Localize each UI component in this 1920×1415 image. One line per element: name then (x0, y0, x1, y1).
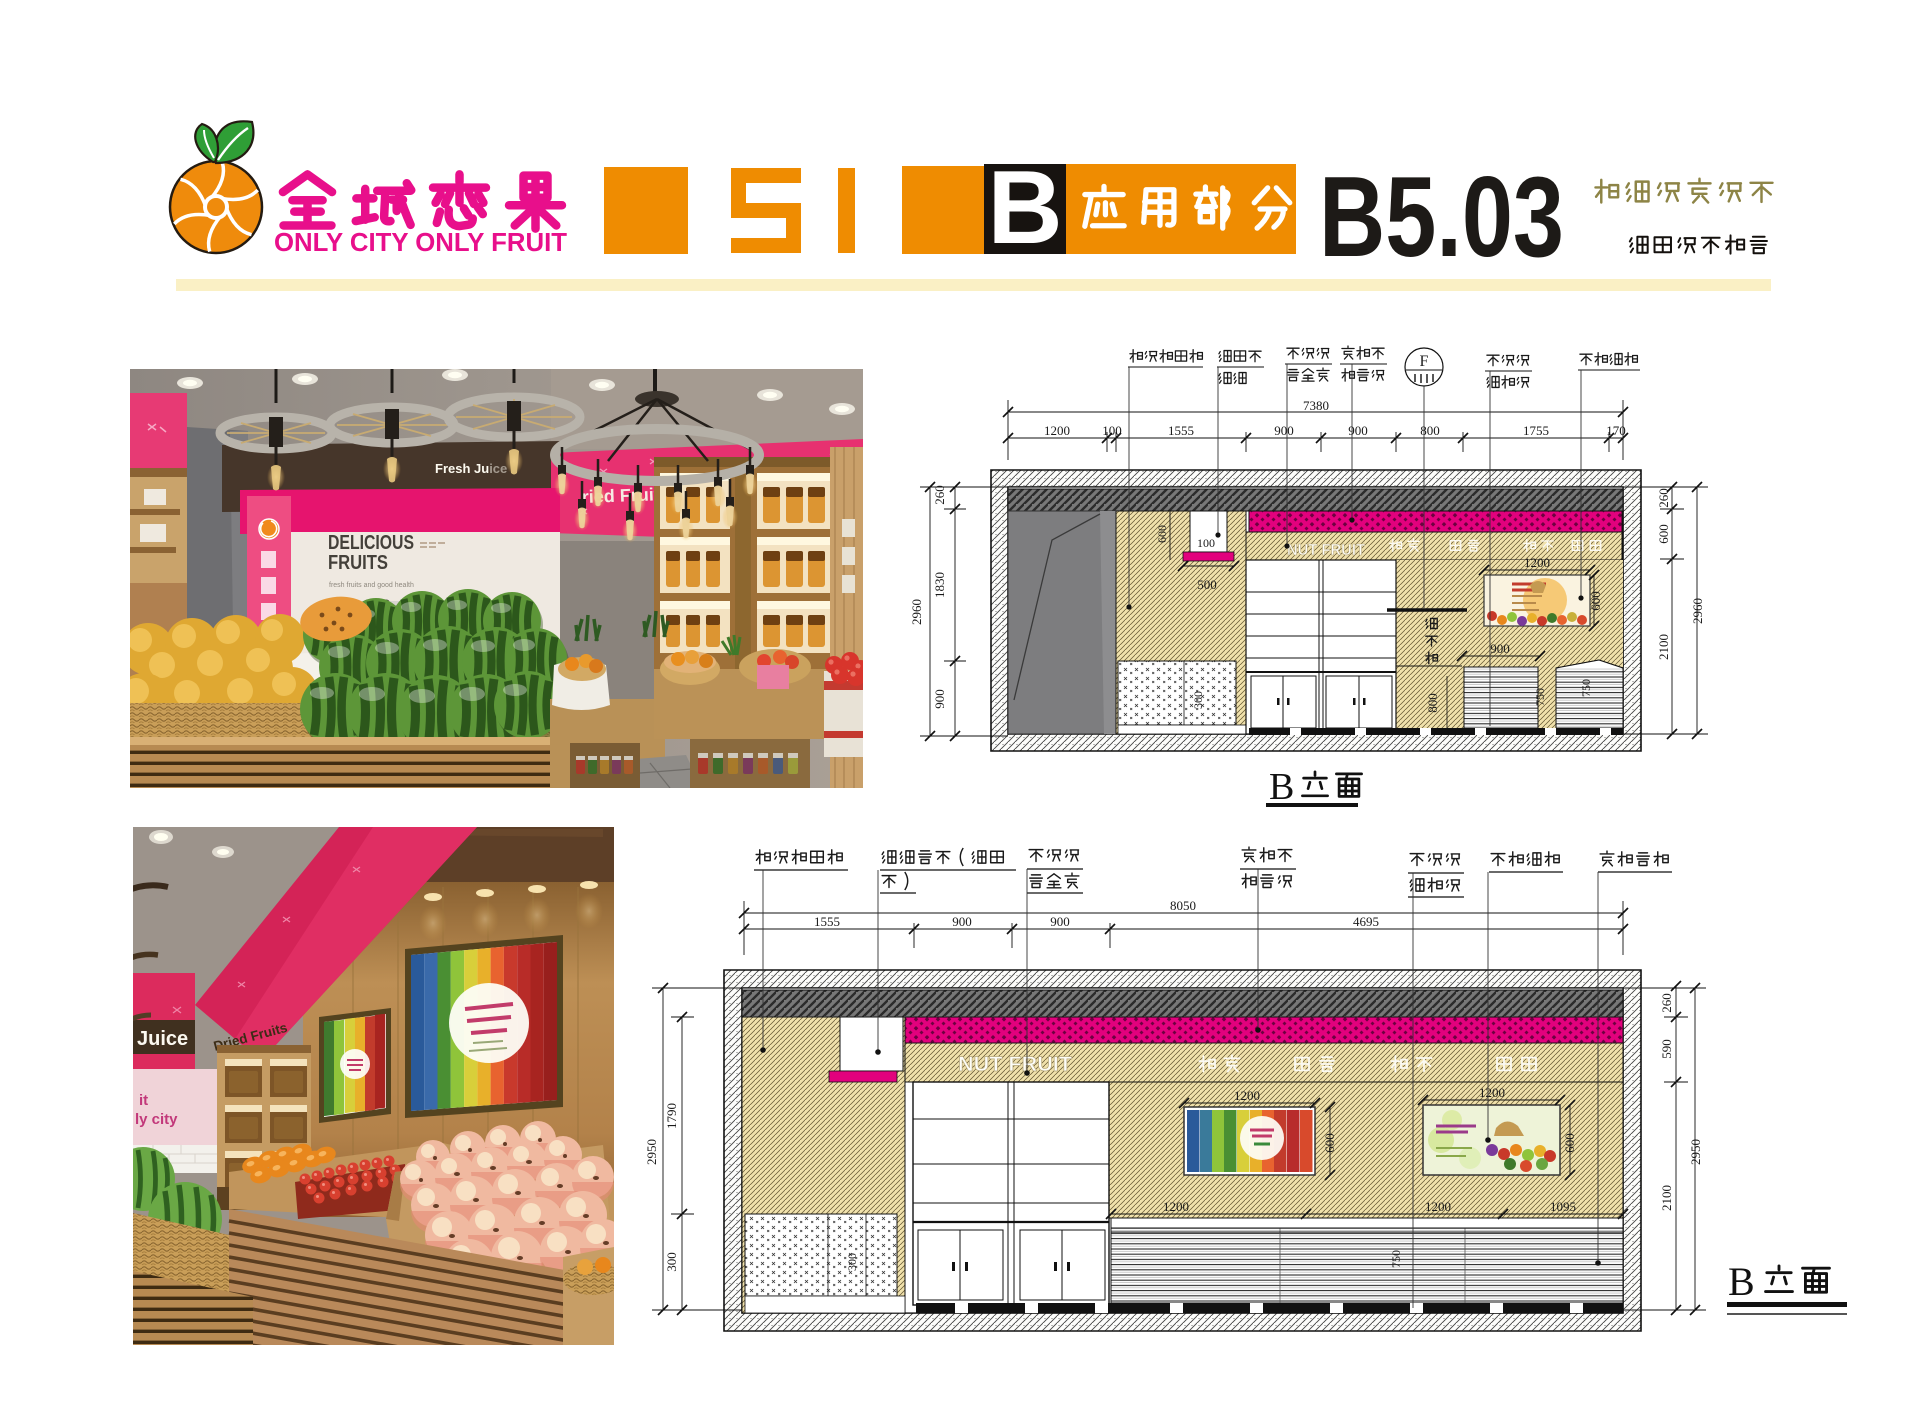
svg-text:750: 750 (1533, 688, 1547, 706)
svg-text:2100: 2100 (1659, 1185, 1674, 1211)
svg-text:Juice: Juice (137, 1028, 188, 1050)
svg-text:300: 300 (1191, 691, 1205, 709)
svg-text:600: 600 (1155, 525, 1169, 543)
svg-text:170: 170 (1606, 423, 1626, 438)
svg-text:it: it (139, 1092, 148, 1109)
svg-text:1790: 1790 (664, 1103, 679, 1129)
svg-text:750: 750 (1389, 1250, 1403, 1268)
svg-text:NUT FRUIT: NUT FRUIT (958, 1053, 1072, 1076)
svg-text:900: 900 (952, 914, 972, 929)
svg-text:fresh fruits and good health: fresh fruits and good health (329, 582, 414, 589)
svg-text:FRUITS: FRUITS (328, 552, 388, 574)
svg-text:ONLY CITY ONLY FRUIT: ONLY CITY ONLY FRUIT (274, 229, 567, 257)
svg-text:900: 900 (932, 689, 947, 709)
svg-text:900: 900 (1348, 423, 1368, 438)
svg-text:1755: 1755 (1523, 423, 1549, 438)
svg-text:7380: 7380 (1303, 398, 1329, 413)
svg-text:2960: 2960 (1690, 598, 1705, 624)
svg-text:260: 260 (1656, 488, 1671, 508)
svg-text:B: B (1728, 1259, 1755, 1304)
svg-text:900: 900 (1050, 914, 1070, 929)
svg-text:100: 100 (1197, 536, 1215, 550)
svg-text:F: F (1420, 353, 1429, 370)
svg-text:2950: 2950 (644, 1139, 659, 1165)
svg-text:2960: 2960 (909, 599, 924, 625)
svg-text:900: 900 (1490, 641, 1510, 656)
svg-text:300: 300 (845, 1253, 859, 1271)
svg-text:B: B (987, 150, 1062, 266)
svg-text:1555: 1555 (814, 914, 840, 929)
svg-text:NUT FRUIT: NUT FRUIT (1287, 542, 1365, 559)
svg-text:4695: 4695 (1353, 914, 1379, 929)
svg-text:300: 300 (664, 1252, 679, 1272)
svg-text:2100: 2100 (1656, 634, 1671, 660)
svg-text:1200: 1200 (1425, 1199, 1451, 1214)
svg-text:800: 800 (1425, 693, 1440, 713)
svg-text:1200: 1200 (1044, 423, 1070, 438)
svg-text:600: 600 (1562, 1133, 1577, 1153)
svg-text:B5.03: B5.03 (1319, 154, 1564, 281)
svg-text:1555: 1555 (1168, 423, 1194, 438)
svg-text:ly city: ly city (135, 1111, 178, 1128)
svg-text:260: 260 (1659, 993, 1674, 1013)
svg-text:900: 900 (1274, 423, 1294, 438)
svg-text:1200: 1200 (1163, 1199, 1189, 1214)
svg-text:2950: 2950 (1688, 1139, 1703, 1165)
svg-text:100: 100 (1102, 423, 1122, 438)
svg-text:DELICIOUS: DELICIOUS (328, 532, 414, 554)
svg-text:600: 600 (1322, 1133, 1337, 1153)
svg-text:1095: 1095 (1550, 1199, 1576, 1214)
svg-text:1200: 1200 (1479, 1085, 1505, 1100)
svg-text:600: 600 (1656, 524, 1671, 544)
svg-text:B: B (1269, 766, 1294, 808)
svg-text:500: 500 (1197, 577, 1217, 592)
svg-text:8050: 8050 (1170, 898, 1196, 913)
svg-text:Fresh Juice: Fresh Juice (435, 461, 507, 476)
svg-text:260: 260 (932, 485, 947, 505)
svg-text:800: 800 (1420, 423, 1440, 438)
svg-text:600: 600 (1588, 591, 1603, 611)
svg-text:1200: 1200 (1524, 555, 1550, 570)
svg-text:750: 750 (1579, 679, 1593, 697)
svg-text:1830: 1830 (932, 572, 947, 598)
svg-text:1200: 1200 (1234, 1088, 1260, 1103)
svg-text:590: 590 (1659, 1039, 1674, 1059)
